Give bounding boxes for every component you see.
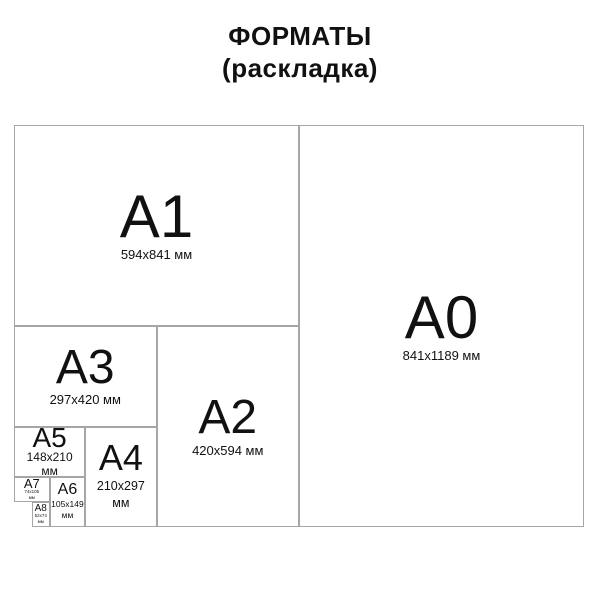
format-a6-dims-line1: 105x149 [51,499,84,510]
page: ФОРМАТЫ (раскладка) A1 594x841 мм A0 841… [0,0,600,600]
format-panel-a7: A7 74x105 мм [14,477,50,502]
format-a4-dims: 210x297 мм [97,478,145,512]
format-a8-dims-line2: мм [35,519,47,525]
format-panel-a3: A3 297x420 мм [14,326,157,427]
format-panel-a5: A5 148x210 мм [14,427,85,477]
format-a0-label: A0 [405,289,478,346]
format-a4-dims-line2: мм [97,495,145,512]
format-a7-label: A7 [24,478,40,490]
paper-format-diagram: A1 594x841 мм A0 841x1189 мм A3 297x420 … [14,125,584,527]
format-panel-a8: A8 52x74 мм [32,502,50,527]
format-a5-dims-line1: 148x210 [27,451,73,465]
format-a8-dims: 52x74 мм [35,513,47,525]
format-a6-dims: 105x149 мм [51,499,84,521]
format-a8-label: A8 [35,504,47,514]
format-a3-label: A3 [56,345,115,391]
format-a0-dims: 841x1189 мм [403,348,481,364]
format-a1-dims-line1: 594x841 мм [121,247,192,263]
format-a2-dims: 420x594 мм [192,443,263,459]
format-a4-dims-line1: 210x297 [97,478,145,495]
format-a4-label: A4 [99,441,143,475]
format-panel-a6: A6 105x149 мм [50,477,86,527]
format-a5-label: A5 [33,427,67,450]
format-a3-dims-line1: 297x420 мм [50,392,121,408]
format-panel-a1: A1 594x841 мм [14,125,299,326]
format-a7-dims-line2: мм [24,495,39,501]
page-title: ФОРМАТЫ (раскладка) [0,20,600,84]
format-a5-dims-line2: мм [27,465,73,477]
format-a5-dims: 148x210 мм [27,451,73,477]
format-a0-dims-line1: 841x1189 мм [403,348,481,364]
format-a6-dims-line2: мм [51,510,84,521]
format-panel-a0: A0 841x1189 мм [299,125,584,527]
format-a2-dims-line1: 420x594 мм [192,443,263,459]
format-a2-label: A2 [198,395,257,441]
page-title-line2: (раскладка) [0,52,600,84]
format-a3-dims: 297x420 мм [50,392,121,408]
format-a1-dims: 594x841 мм [121,247,192,263]
format-a1-label: A1 [120,188,193,245]
format-a7-dims: 74x105 мм [24,489,39,501]
format-panel-a4: A4 210x297 мм [85,427,156,528]
page-title-line1: ФОРМАТЫ [0,20,600,52]
format-panel-a2: A2 420x594 мм [157,326,300,527]
format-a6-label: A6 [58,482,78,498]
